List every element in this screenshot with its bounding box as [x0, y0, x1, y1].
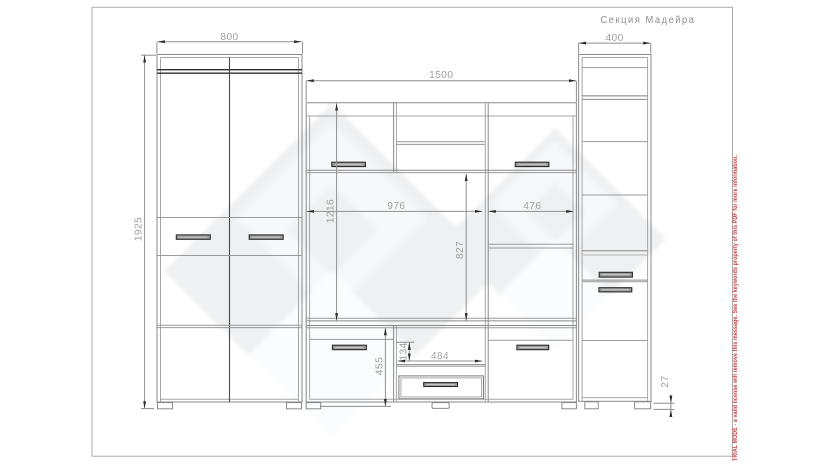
- svg-text:484: 484: [431, 351, 449, 362]
- svg-text:455: 455: [373, 357, 385, 376]
- svg-text:TRIAL MODE - a valid license w: TRIAL MODE - a valid license will remove…: [732, 155, 739, 461]
- svg-text:Секция Мадейра: Секция Мадейра: [601, 15, 696, 26]
- svg-text:976: 976: [387, 201, 405, 212]
- svg-text:800: 800: [220, 32, 238, 43]
- svg-text:134: 134: [399, 342, 410, 360]
- svg-text:1925: 1925: [134, 217, 145, 241]
- svg-text:476: 476: [523, 201, 541, 212]
- svg-text:400: 400: [605, 33, 623, 44]
- svg-text:1500: 1500: [429, 70, 453, 81]
- svg-text:827: 827: [455, 241, 466, 259]
- svg-text:27: 27: [660, 375, 671, 387]
